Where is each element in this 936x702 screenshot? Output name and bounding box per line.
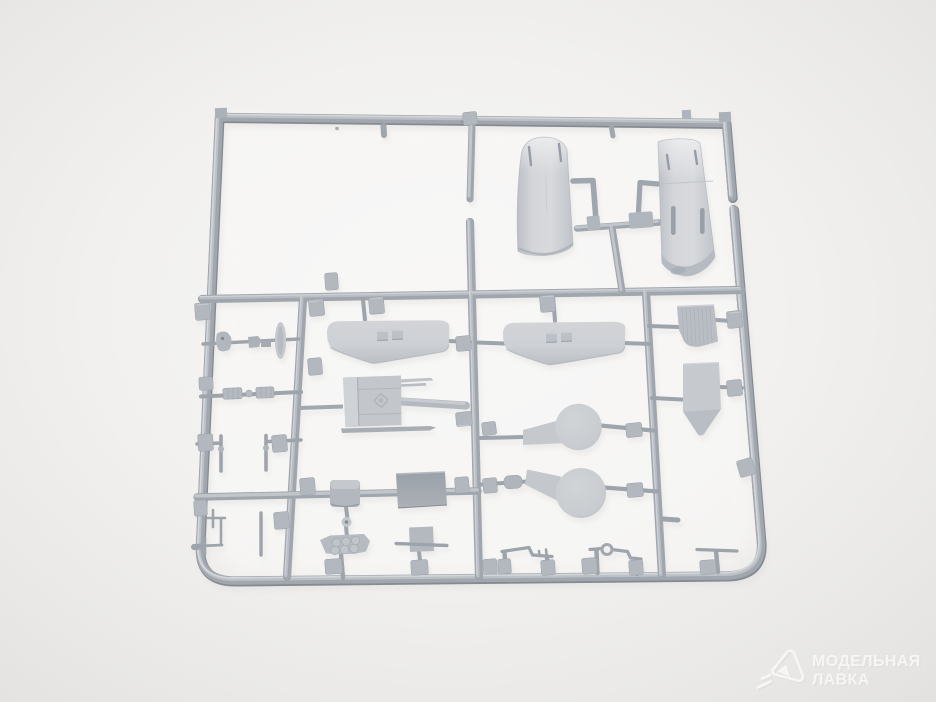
svg-text:ЛАВКА: ЛАВКА [812, 672, 870, 689]
svg-text:МОДЕЛЬНАЯ: МОДЕЛЬНАЯ [812, 653, 921, 670]
